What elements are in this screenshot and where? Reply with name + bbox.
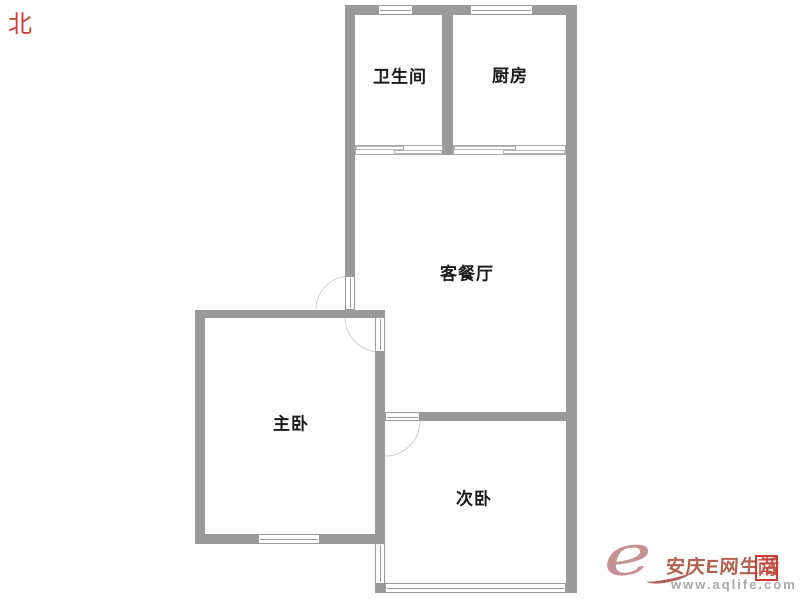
aqlife-logo-e-icon: e	[600, 527, 655, 586]
window-kitchen-top	[470, 5, 533, 15]
wall-right	[566, 5, 577, 593]
wall-bathroom-kitchen-divider	[442, 15, 453, 145]
wall-mid-stub	[442, 145, 453, 155]
sliding-door-kitchen	[453, 145, 566, 155]
sliding-door-panel	[503, 150, 565, 154]
room-label-second-bedroom: 次卧	[456, 485, 492, 510]
compass-south-label: 南	[755, 555, 778, 581]
door-swing-arcs	[0, 0, 800, 600]
second-bedroom-door-leaf	[385, 412, 420, 421]
second-bedroom-door-arc	[385, 421, 420, 456]
wall-left-upper	[345, 5, 355, 276]
master-bedroom-door-leaf	[375, 317, 385, 352]
window-second-bedroom-left	[375, 543, 385, 584]
floorplan-canvas: 北 卫生间 厨房 客餐厅 主卧 次卧 e 安庆E网生活 www.	[0, 0, 800, 600]
sliding-door-panel	[394, 150, 442, 154]
room-label-master-bedroom: 主卧	[273, 410, 309, 435]
window-second-bedroom-bottom	[385, 583, 566, 593]
entry-door-leaf	[345, 276, 355, 310]
room-label-living-dining: 客餐厅	[440, 260, 494, 285]
wall-second-bedroom-top	[420, 412, 577, 421]
window-bathroom-top	[378, 5, 413, 15]
sliding-door-bathroom	[355, 145, 443, 155]
wall-master-left	[195, 310, 205, 544]
room-label-kitchen: 厨房	[492, 62, 528, 87]
room-label-bathroom: 卫生间	[373, 63, 427, 88]
wall-master-top	[195, 310, 385, 318]
compass-north-label: 北	[8, 13, 32, 37]
wall-master-right	[375, 352, 385, 544]
window-master-bottom	[258, 534, 320, 544]
